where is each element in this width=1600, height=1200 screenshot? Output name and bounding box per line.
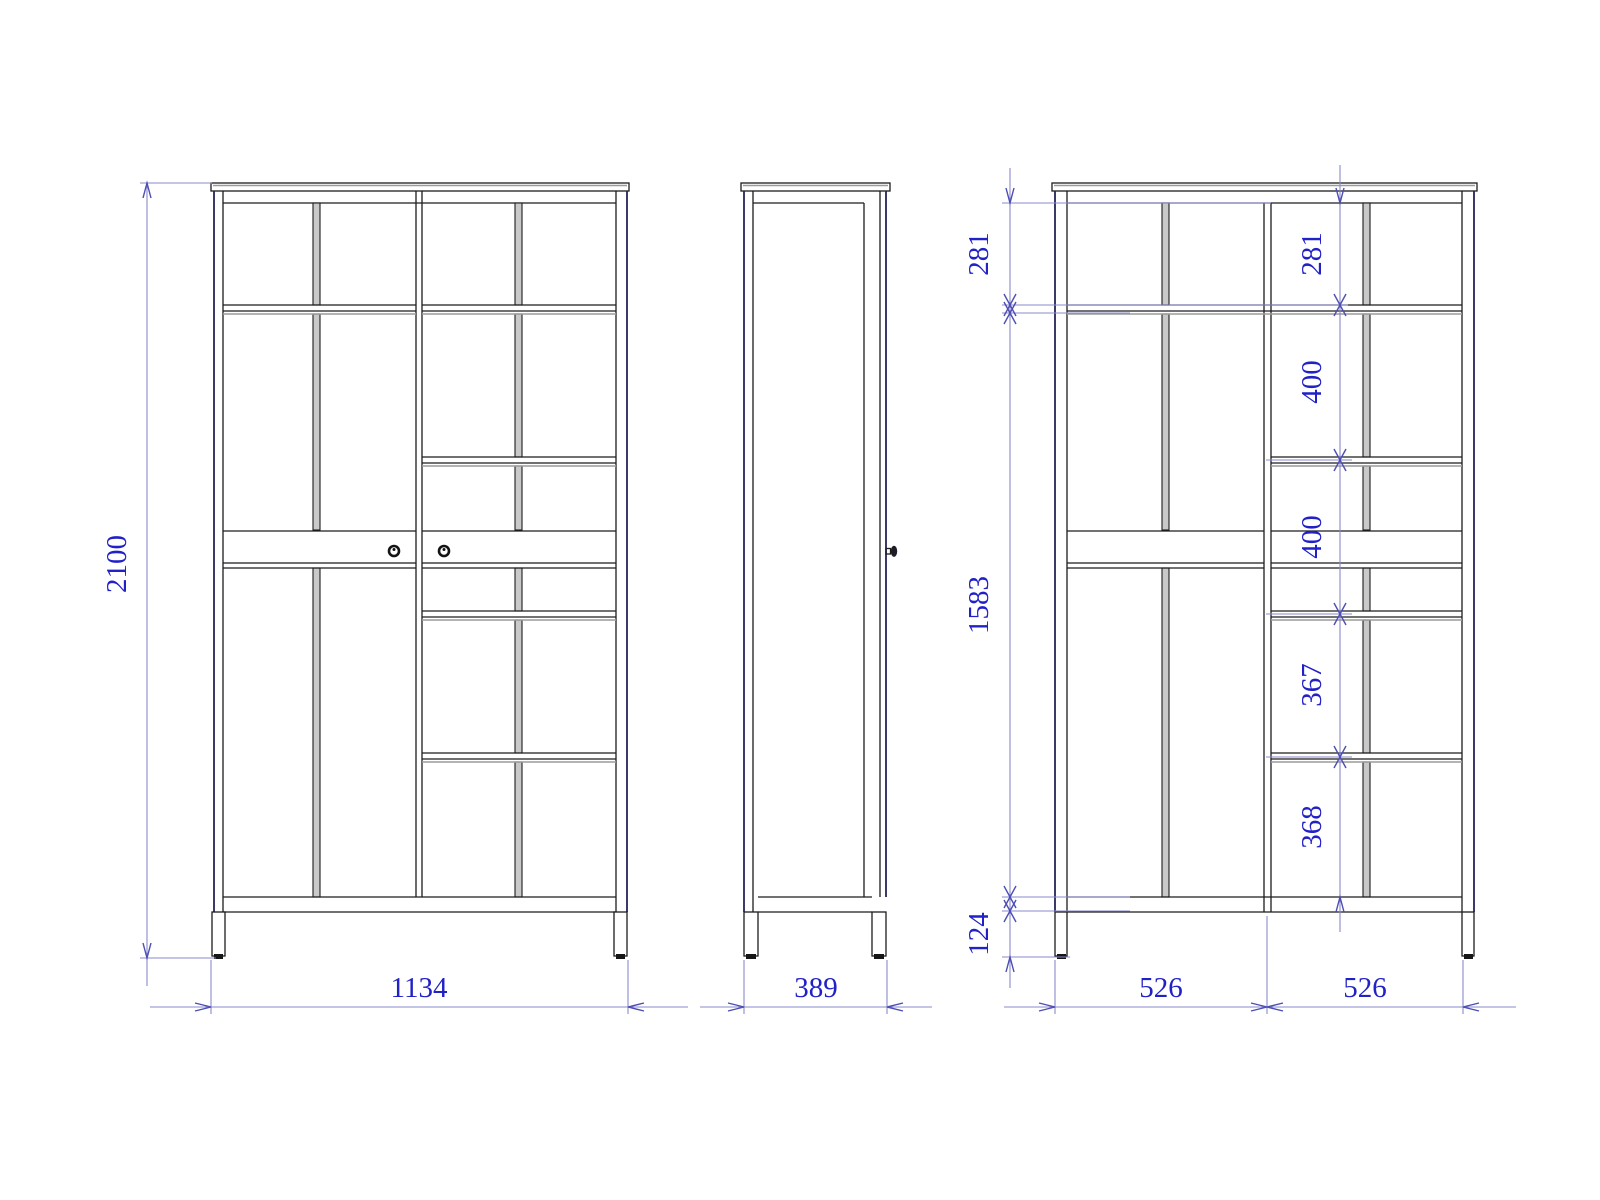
front-rail-right-3 [422, 753, 616, 762]
wardrobe-drawing: 2100 1134 389 281 1583 [0, 0, 1600, 1200]
front-rail-right-1 [422, 457, 616, 466]
dim-label-400-upper: 400 [1296, 360, 1328, 404]
dim-label-281-left: 281 [963, 232, 995, 276]
internal-top-board [1052, 183, 1477, 191]
side-top-board [741, 183, 890, 191]
front-bottom-rail [223, 897, 616, 912]
front-lock-rail [223, 531, 616, 568]
dim-label-1134: 1134 [391, 972, 448, 1004]
dimension-front-height: 2100 [101, 183, 216, 986]
dim-label-2100: 2100 [101, 535, 133, 593]
front-top-board [211, 183, 629, 191]
side-front-leg [872, 912, 886, 956]
drawing-canvas: 2100 1134 389 281 1583 [0, 0, 1600, 1200]
front-left-door-muntin [313, 203, 320, 897]
internal-right-leg [1462, 912, 1474, 956]
dim-label-281-right: 281 [1296, 232, 1328, 276]
front-rail-1 [223, 305, 616, 314]
dim-label-400-lower: 400 [1296, 515, 1328, 559]
dimension-internal-widths: 526 526 [1004, 916, 1516, 1014]
internal-left-muntin [1162, 203, 1169, 897]
front-view [211, 183, 629, 959]
dim-label-1583: 1583 [963, 576, 995, 634]
dim-label-124: 124 [963, 912, 995, 956]
dimension-left-chain: 281 1583 124 [963, 168, 1348, 988]
internal-right-muntin [1363, 203, 1370, 897]
dim-label-368: 368 [1296, 805, 1328, 849]
dim-label-389: 389 [794, 972, 838, 1004]
front-left-leg [212, 912, 225, 956]
internal-view [1052, 183, 1477, 959]
dimension-side-depth: 389 [700, 960, 932, 1014]
dim-label-526-right: 526 [1343, 972, 1387, 1004]
dimension-internal-chain: 281 400 400 367 368 [1266, 165, 1352, 932]
internal-left-leg [1055, 912, 1067, 956]
internal-shelf-2 [1271, 457, 1462, 466]
front-right-door-muntin [515, 203, 522, 897]
side-view [741, 183, 897, 959]
dim-label-526-left: 526 [1139, 972, 1183, 1004]
dimension-front-width: 1134 [150, 960, 688, 1014]
side-back-leg [744, 912, 758, 956]
side-knob [886, 546, 897, 557]
internal-shelf-3 [1271, 611, 1462, 620]
front-right-leg [614, 912, 627, 956]
front-rail-right-2 [422, 611, 616, 620]
dim-label-367: 367 [1296, 663, 1328, 707]
